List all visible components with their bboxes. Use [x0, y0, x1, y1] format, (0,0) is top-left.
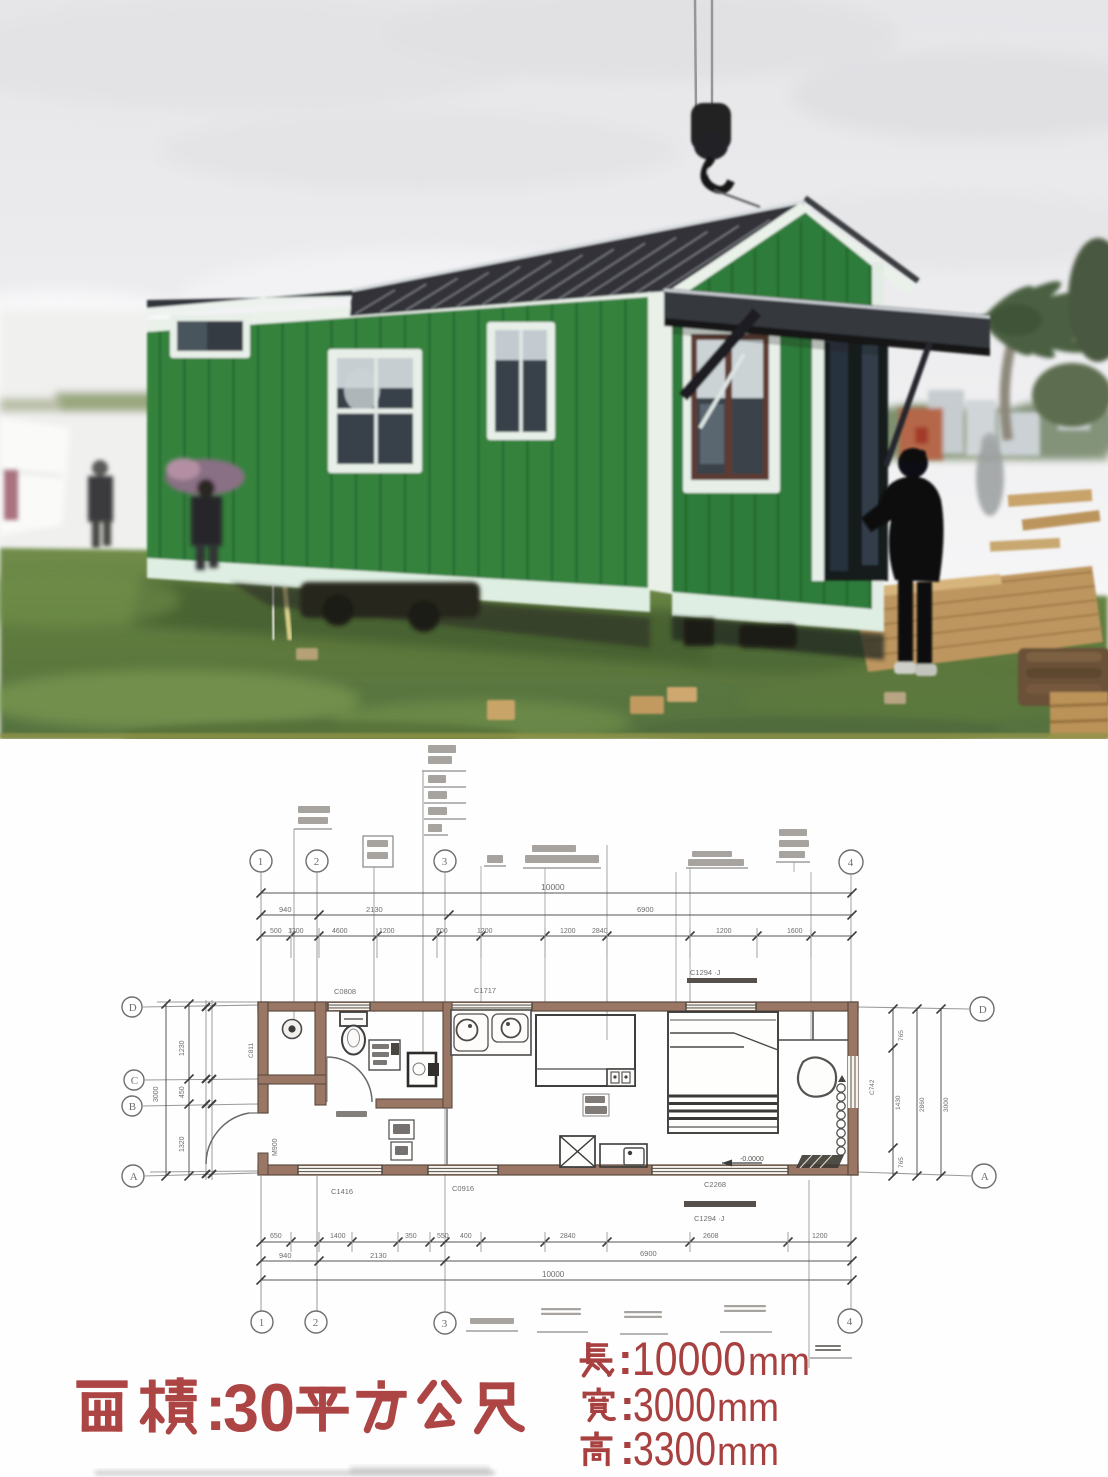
svg-text:3000: 3000 [943, 1097, 950, 1112]
svg-text:D: D [129, 1002, 137, 1014]
svg-text:1200: 1200 [716, 928, 732, 935]
svg-text:C742: C742 [869, 1079, 876, 1095]
svg-text:3300: 3300 [633, 1422, 716, 1475]
svg-text:3000: 3000 [153, 1086, 160, 1102]
svg-text:1: 1 [259, 1317, 265, 1329]
svg-text:350: 350 [405, 1233, 417, 1240]
svg-text:1200: 1200 [812, 1233, 828, 1240]
svg-text:C1416: C1416 [331, 1187, 353, 1196]
svg-text:2130: 2130 [366, 905, 383, 914]
svg-text:1200: 1200 [477, 928, 493, 935]
svg-text:550: 550 [437, 1233, 449, 1240]
svg-text:B: B [129, 1101, 136, 1113]
svg-text:700: 700 [436, 928, 448, 935]
svg-text:C1294 ·J: C1294 ·J [694, 1214, 725, 1223]
svg-text:2840: 2840 [592, 928, 608, 935]
svg-text:2: 2 [313, 1317, 319, 1329]
svg-text:A: A [130, 1171, 138, 1183]
svg-text:C1294 ·J: C1294 ·J [690, 968, 721, 977]
svg-text:D: D [979, 1004, 987, 1016]
svg-text:3: 3 [442, 1318, 448, 1330]
svg-text:3: 3 [442, 856, 448, 868]
svg-text:2: 2 [314, 856, 320, 868]
svg-text:2130: 2130 [370, 1251, 387, 1260]
svg-text:450: 450 [179, 1086, 186, 1098]
svg-text:4600: 4600 [332, 928, 348, 935]
svg-text:C: C [131, 1075, 138, 1087]
svg-text:10000: 10000 [541, 882, 565, 892]
svg-text:765: 765 [898, 1030, 905, 1041]
svg-text:1430: 1430 [895, 1095, 902, 1110]
svg-text:1230: 1230 [179, 1040, 186, 1056]
svg-text:mm: mm [717, 1386, 779, 1430]
svg-text:M900: M900 [272, 1138, 279, 1156]
svg-text:10000: 10000 [542, 1270, 565, 1279]
svg-text:1600: 1600 [787, 928, 803, 935]
svg-text:30: 30 [223, 1370, 295, 1446]
svg-text:4: 4 [847, 1316, 853, 1328]
svg-text:C1717: C1717 [474, 986, 496, 995]
svg-text:1320: 1320 [179, 1136, 186, 1152]
svg-text:500: 500 [270, 928, 282, 935]
svg-text:mm: mm [717, 1430, 779, 1474]
svg-text:1: 1 [258, 856, 264, 868]
svg-text:400: 400 [460, 1233, 472, 1240]
svg-text:940: 940 [279, 905, 292, 914]
svg-text:2860: 2860 [919, 1097, 926, 1112]
svg-text:1400: 1400 [330, 1233, 346, 1240]
svg-text:940: 940 [279, 1251, 292, 1260]
svg-text:6900: 6900 [640, 1249, 657, 1258]
svg-text:C811: C811 [248, 1043, 255, 1058]
svg-text:1200: 1200 [560, 928, 576, 935]
svg-text:C0916: C0916 [452, 1184, 474, 1193]
svg-text:C2268: C2268 [704, 1180, 726, 1189]
svg-text:765: 765 [898, 1157, 905, 1168]
svg-text:1200: 1200 [379, 928, 395, 935]
svg-text:650: 650 [270, 1233, 282, 1240]
svg-text:2608: 2608 [703, 1233, 719, 1240]
svg-text:mm: mm [748, 1340, 810, 1384]
svg-text:6900: 6900 [637, 905, 654, 914]
svg-text:-0.0000: -0.0000 [740, 1156, 764, 1163]
svg-text:C0808: C0808 [334, 987, 356, 996]
svg-text:2840: 2840 [560, 1233, 576, 1240]
svg-text:1200: 1200 [288, 928, 304, 935]
svg-text:4: 4 [848, 857, 854, 869]
svg-text:A: A [981, 1171, 989, 1183]
svg-text::: : [618, 1335, 633, 1384]
